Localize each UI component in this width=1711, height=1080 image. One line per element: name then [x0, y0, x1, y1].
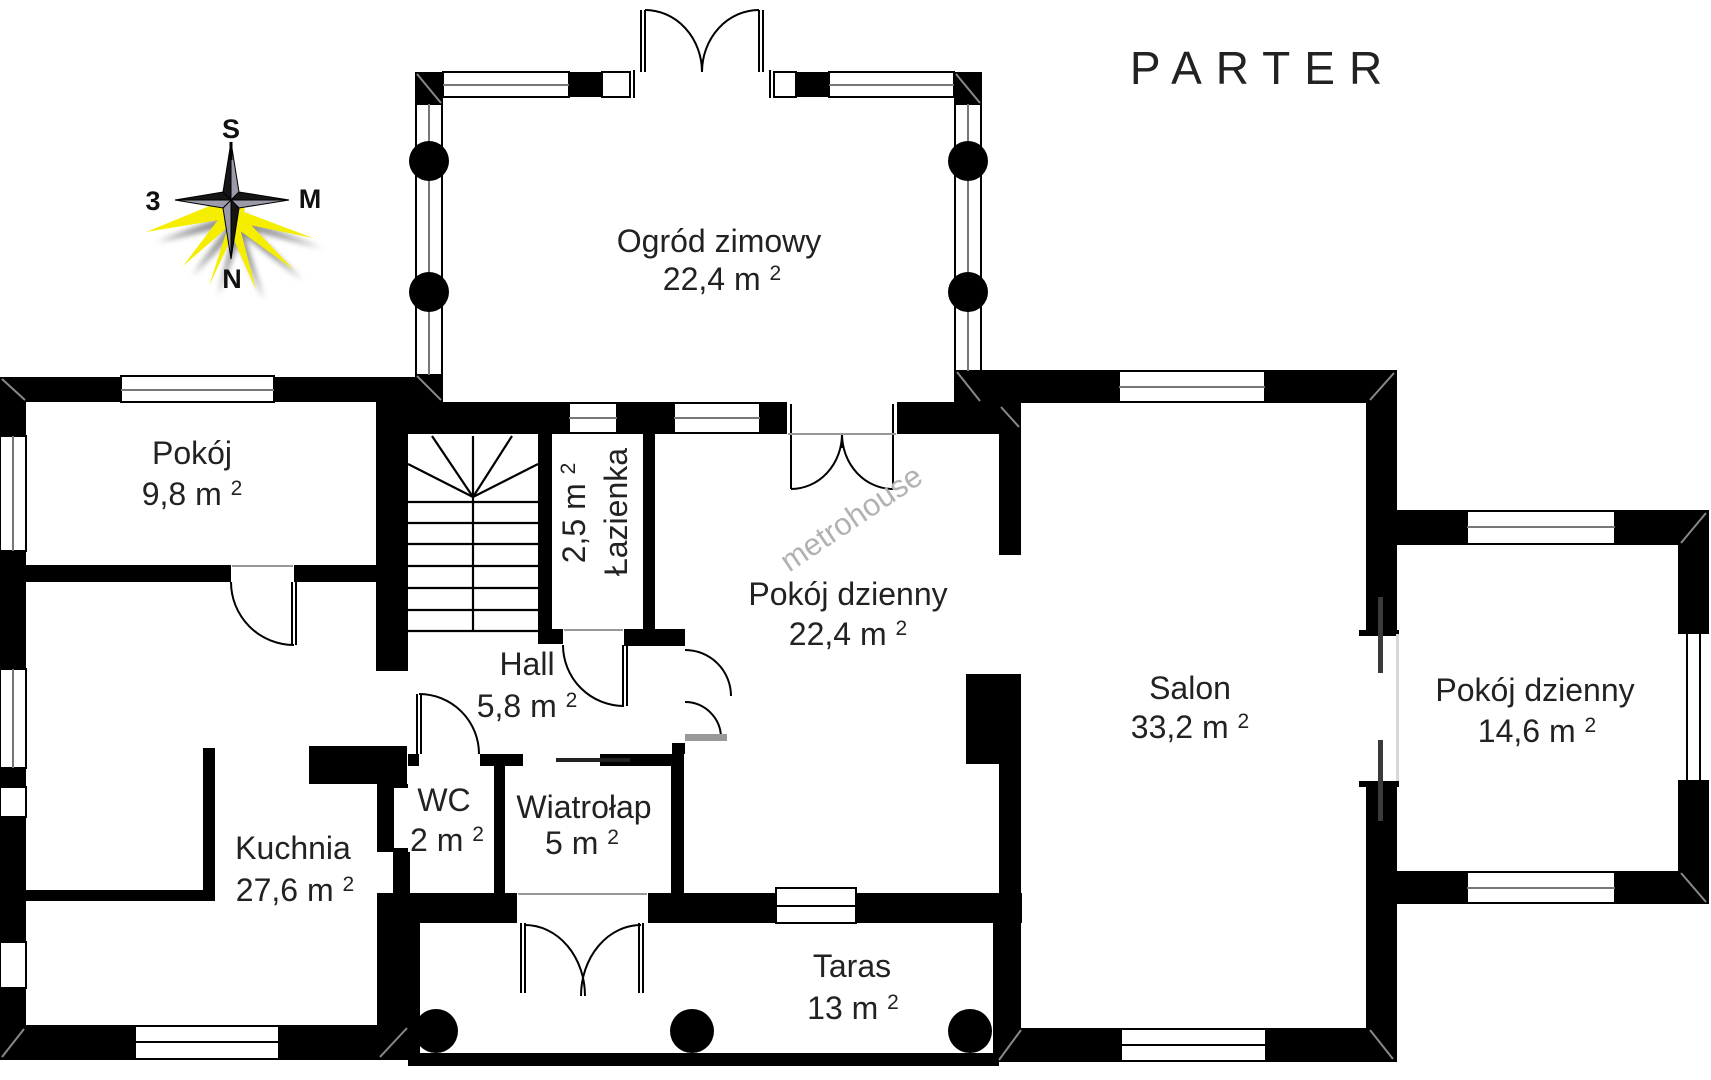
svg-text:5,8 m 2: 5,8 m 2: [477, 688, 578, 724]
svg-text:N: N: [222, 264, 242, 294]
svg-text:Pokój dzienny: Pokój dzienny: [748, 576, 947, 612]
svg-text:14,6 m 2: 14,6 m 2: [1478, 713, 1596, 749]
svg-text:Pokój: Pokój: [152, 435, 232, 471]
svg-text:2,5 m 2: 2,5 m 2: [556, 463, 592, 564]
svg-text:WC: WC: [417, 782, 470, 818]
svg-text:M: M: [299, 184, 322, 214]
svg-text:Wiatrołap: Wiatrołap: [516, 789, 651, 825]
svg-text:33,2 m 2: 33,2 m 2: [1131, 709, 1249, 745]
svg-text:27,6 m 2: 27,6 m 2: [236, 872, 354, 908]
svg-text:22,4 m 2: 22,4 m 2: [789, 616, 907, 652]
svg-text:9,8 m 2: 9,8 m 2: [142, 476, 243, 512]
svg-text:Hall: Hall: [499, 646, 554, 682]
svg-text:Pokój dzienny: Pokój dzienny: [1435, 672, 1634, 708]
svg-text:3: 3: [145, 186, 160, 216]
svg-text:Salon: Salon: [1149, 670, 1231, 706]
svg-text:S: S: [222, 114, 240, 144]
svg-text:Kuchnia: Kuchnia: [235, 830, 351, 866]
svg-text:PARTER: PARTER: [1130, 42, 1396, 94]
svg-text:Taras: Taras: [813, 948, 891, 984]
svg-text:13 m 2: 13 m 2: [807, 990, 899, 1026]
svg-text:22,4 m 2: 22,4 m 2: [663, 261, 781, 297]
svg-text:Łazienka: Łazienka: [598, 448, 634, 576]
svg-text:Ogród zimowy: Ogród zimowy: [617, 223, 822, 259]
